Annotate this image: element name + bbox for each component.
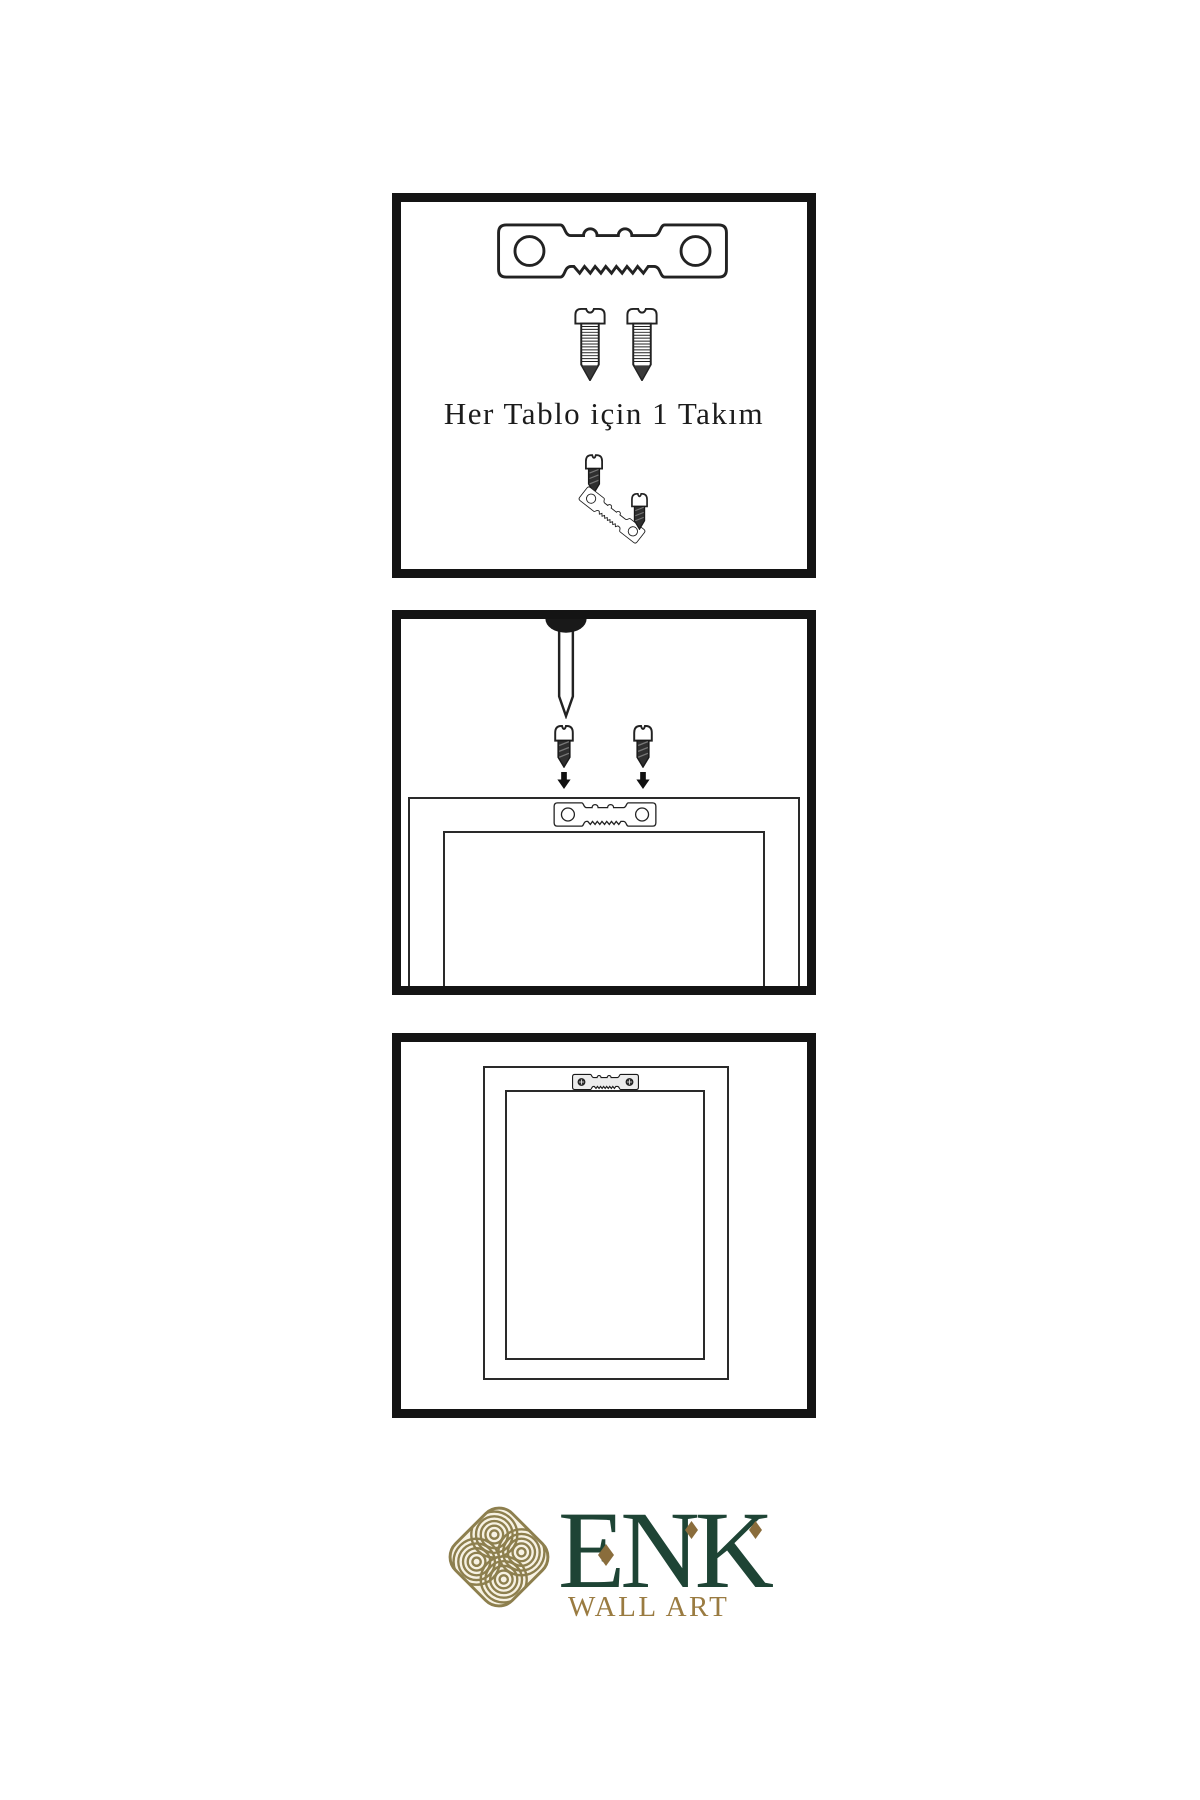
frame-inner-edge xyxy=(505,1090,705,1360)
screw-dark-icon xyxy=(633,725,653,768)
sawtooth-hanger-icon xyxy=(553,802,657,827)
instruction-sheet: Her Tablo için 1 Takım ENK WALL ART xyxy=(0,0,1200,1800)
screw-dark-icon xyxy=(554,725,574,768)
sawtooth-hanger-installed-icon xyxy=(572,1073,639,1091)
nail-icon xyxy=(544,619,588,719)
panel-kit-contents: Her Tablo için 1 Takım xyxy=(392,193,816,578)
arrow-down-icon xyxy=(557,772,571,789)
arrow-down-icon xyxy=(636,772,650,789)
screw-threaded-icon xyxy=(625,307,659,381)
sawtooth-hanger-icon xyxy=(495,223,730,279)
kit-caption: Her Tablo için 1 Takım xyxy=(401,396,807,432)
screw-threaded-icon xyxy=(573,307,607,381)
screw-dark-icon xyxy=(631,493,648,530)
knot-logo-icon xyxy=(440,1490,558,1624)
logo-tagline: WALL ART xyxy=(568,1591,729,1624)
panel-hung-frame xyxy=(392,1033,816,1418)
frame-inner-edge xyxy=(443,831,765,995)
panel-wall-mounting xyxy=(392,610,816,995)
